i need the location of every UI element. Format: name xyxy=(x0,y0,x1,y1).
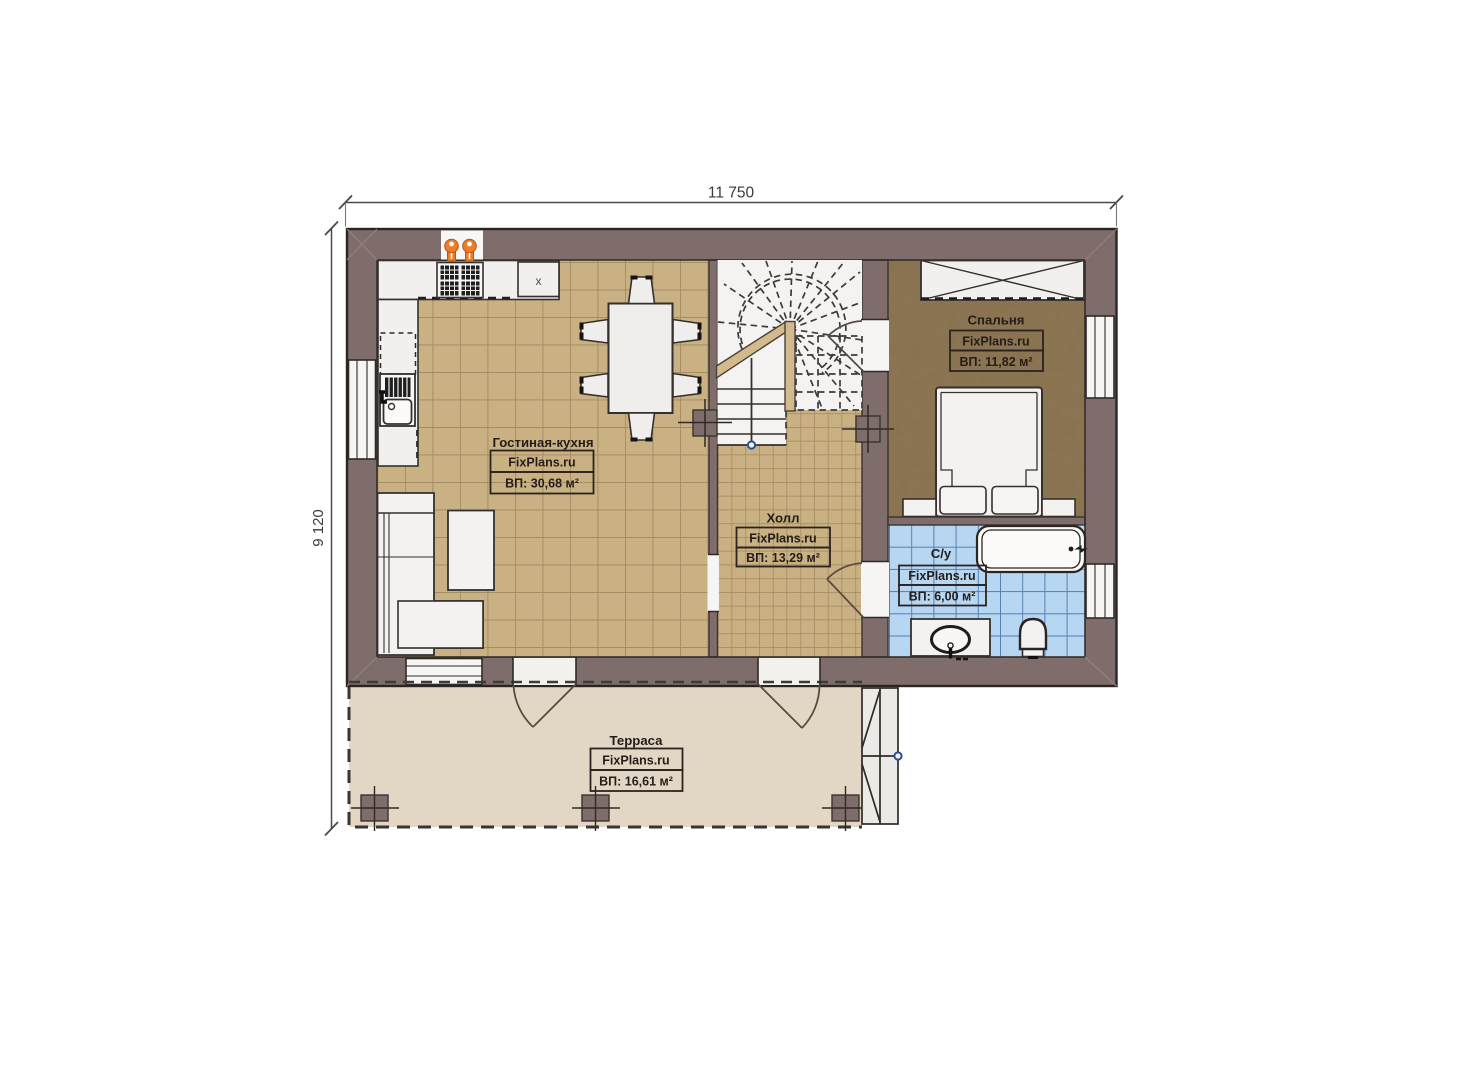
svg-text:ВП: 11,82 м²: ВП: 11,82 м² xyxy=(959,355,1032,369)
svg-text:Спальня: Спальня xyxy=(968,313,1025,328)
svg-text:Холл: Холл xyxy=(766,511,799,526)
svg-text:11 750: 11 750 xyxy=(708,185,755,202)
svg-text:x: x xyxy=(536,274,542,288)
svg-text:Гостиная-кухня: Гостиная-кухня xyxy=(492,435,593,450)
svg-text:ВП: 16,61 м²: ВП: 16,61 м² xyxy=(599,775,673,789)
svg-text:FixPlans.ru: FixPlans.ru xyxy=(962,335,1029,349)
svg-text:ВП: 6,00 м²: ВП: 6,00 м² xyxy=(909,590,976,604)
svg-text:ВП: 13,29 м²: ВП: 13,29 м² xyxy=(746,551,820,565)
svg-text:FixPlans.ru: FixPlans.ru xyxy=(508,456,575,470)
svg-text:ВП: 30,68 м²: ВП: 30,68 м² xyxy=(505,477,579,491)
svg-text:FixPlans.ru: FixPlans.ru xyxy=(908,569,975,583)
svg-text:Терраса: Терраса xyxy=(609,733,663,748)
svg-text:FixPlans.ru: FixPlans.ru xyxy=(602,754,669,768)
svg-text:9 120: 9 120 xyxy=(310,509,327,547)
svg-text:FixPlans.ru: FixPlans.ru xyxy=(749,532,816,546)
svg-text:С/у: С/у xyxy=(931,546,952,561)
